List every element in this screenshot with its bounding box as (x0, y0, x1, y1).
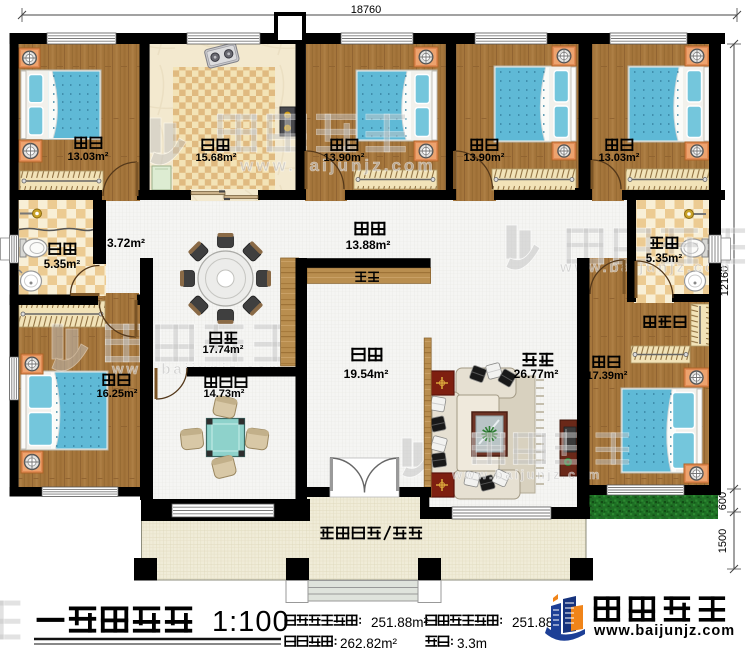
svg-text:19.54m²: 19.54m² (344, 367, 389, 381)
svg-text:5.35m²: 5.35m² (44, 259, 81, 271)
svg-text:5.35m²: 5.35m² (646, 253, 683, 265)
svg-text:www.baijunjz.com: www.baijunjz.com (593, 623, 735, 639)
svg-text:13.90m²: 13.90m² (324, 152, 365, 164)
svg-text:13.03m²: 13.03m² (599, 152, 640, 164)
svg-text:13.88m²: 13.88m² (346, 238, 391, 252)
svg-text:262.82m²: 262.82m² (340, 636, 398, 651)
svg-text:26.77m²: 26.77m² (514, 367, 559, 381)
svg-text:17.74m²: 17.74m² (203, 344, 244, 356)
svg-text:16.25m²: 16.25m² (97, 388, 138, 400)
svg-text:3.3m: 3.3m (457, 636, 487, 651)
svg-text:3.72m²: 3.72m² (107, 236, 145, 250)
svg-text:1:100: 1:100 (212, 606, 290, 638)
svg-text:1500: 1500 (717, 529, 729, 553)
svg-text:17.39m²: 17.39m² (587, 370, 628, 382)
svg-text:18760: 18760 (351, 4, 382, 16)
svg-text:13.03m²: 13.03m² (68, 151, 109, 163)
svg-text:13.90m²: 13.90m² (464, 152, 505, 164)
svg-text:14.73m²: 14.73m² (204, 388, 245, 400)
svg-text:251.88m²: 251.88m² (371, 615, 429, 630)
svg-text:15.68m²: 15.68m² (196, 152, 237, 164)
